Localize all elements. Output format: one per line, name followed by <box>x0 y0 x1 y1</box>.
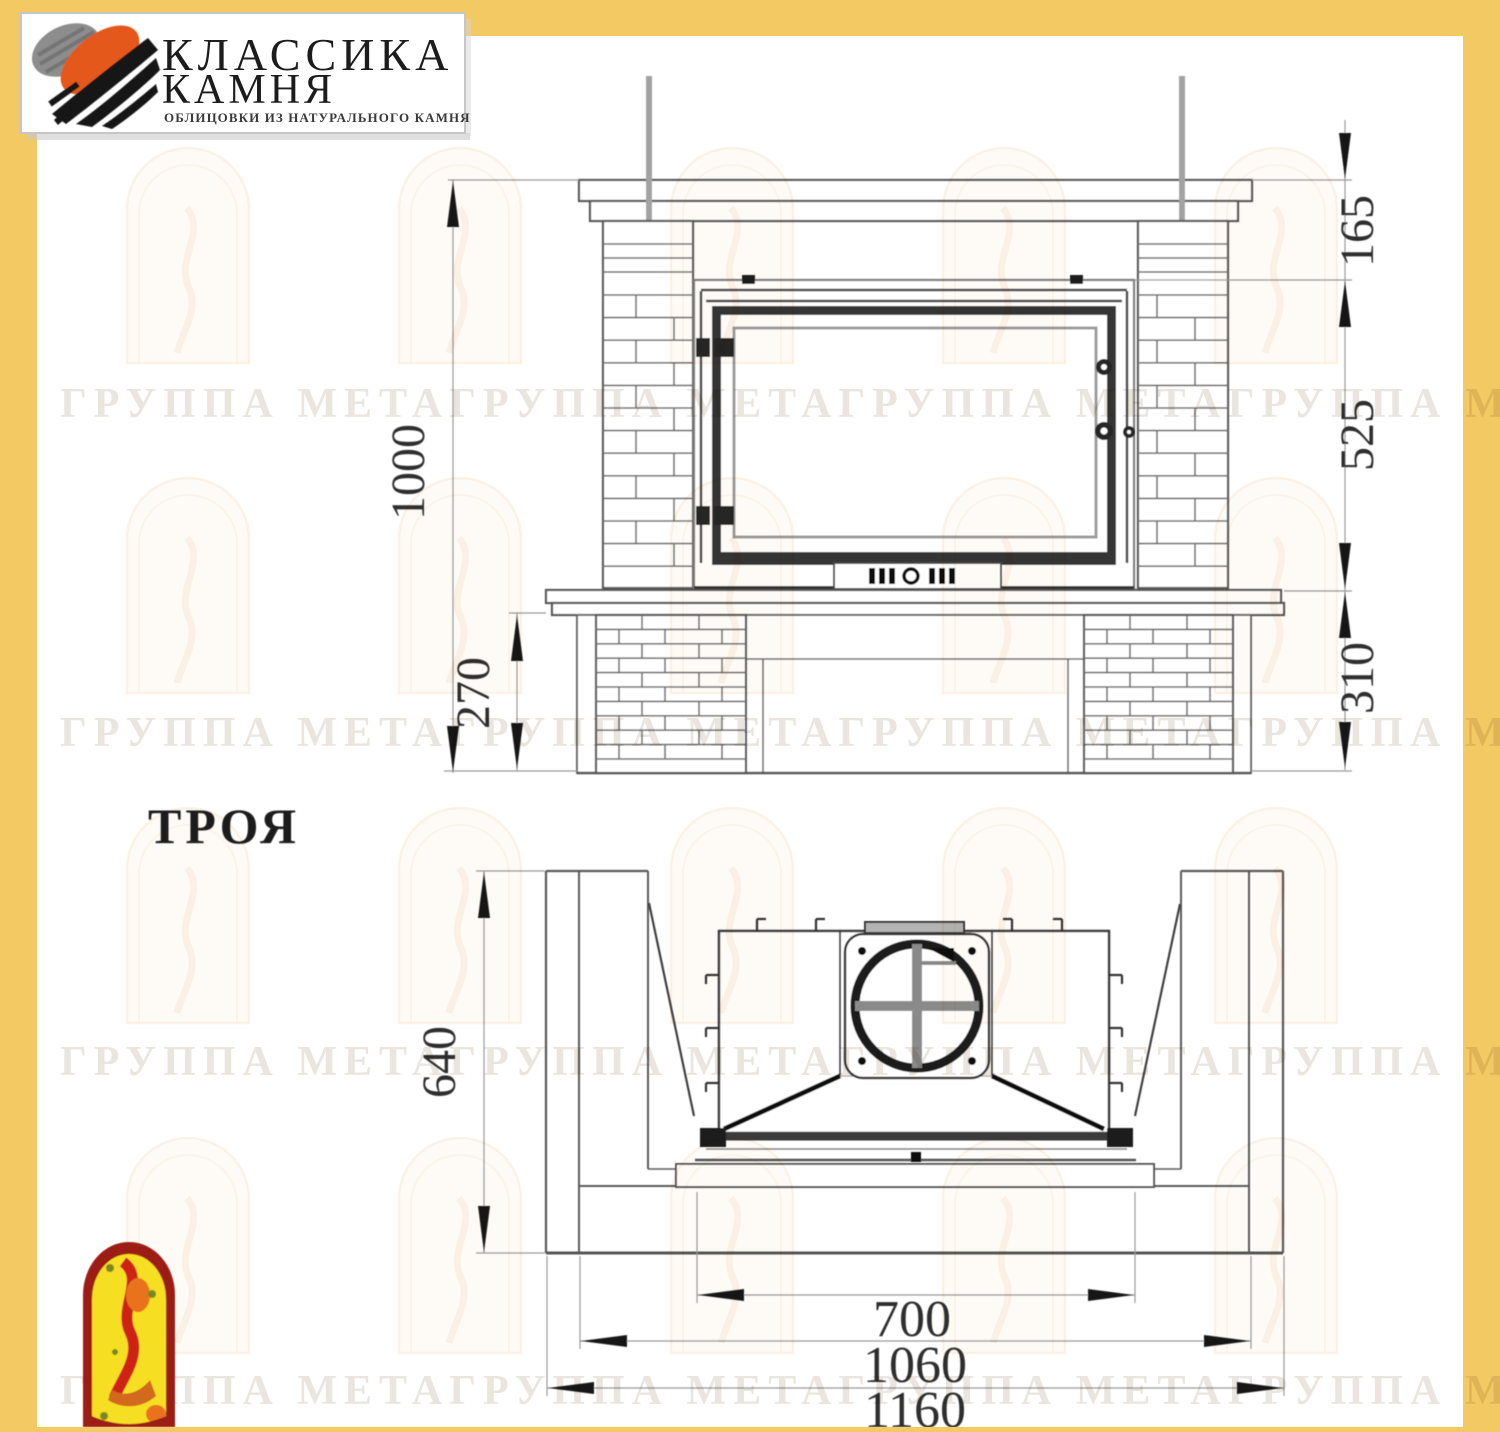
svg-text:ГРУППА МЕТАГРУППА МЕТАГРУППА М: ГРУППА МЕТАГРУППА МЕТАГРУППА МЕТАГРУППА … <box>60 381 1500 427</box>
svg-text:ГРУППА МЕТАГРУППА МЕТАГРУППА М: ГРУППА МЕТАГРУППА МЕТАГРУППА МЕТАГРУППА … <box>60 1039 1500 1085</box>
svg-text:ГРУППА МЕТАГРУППА МЕТАГРУППА М: ГРУППА МЕТАГРУППА МЕТАГРУППА МЕТАГРУППА … <box>60 1368 1500 1414</box>
svg-text:165: 165 <box>1331 195 1384 267</box>
svg-text:ГРУППА МЕТАГРУППА МЕТАГРУППА М: ГРУППА МЕТАГРУППА МЕТАГРУППА МЕТАГРУППА … <box>60 710 1500 756</box>
svg-text:310: 310 <box>1331 642 1384 714</box>
svg-text:КАМНЯ: КАМНЯ <box>162 67 336 113</box>
svg-text:ОБЛИЦОВКИ ИЗ НАТУРАЛЬНОГО КАМН: ОБЛИЦОВКИ ИЗ НАТУРАЛЬНОГО КАМНЯ <box>164 110 471 125</box>
